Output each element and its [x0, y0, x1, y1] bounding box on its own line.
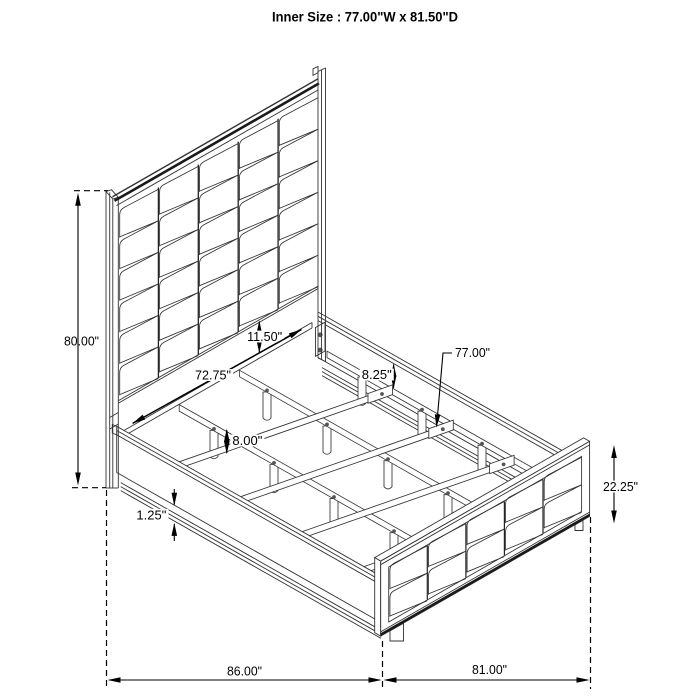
svg-text:72.75": 72.75" [195, 369, 231, 383]
svg-text:22.25": 22.25" [603, 480, 638, 494]
svg-text:86.00": 86.00" [227, 665, 262, 679]
svg-text:8.25": 8.25" [362, 368, 392, 382]
svg-text:11.50": 11.50" [247, 330, 282, 344]
svg-text:1.25": 1.25" [136, 508, 166, 522]
svg-text:Inner Size : 77.00"W x 81.50"D: Inner Size : 77.00"W x 81.50"D [272, 10, 458, 25]
svg-text:8.00": 8.00" [232, 434, 262, 448]
svg-text:77.00": 77.00" [455, 346, 490, 360]
svg-text:81.00": 81.00" [472, 663, 507, 677]
svg-text:80.00": 80.00" [64, 335, 99, 349]
